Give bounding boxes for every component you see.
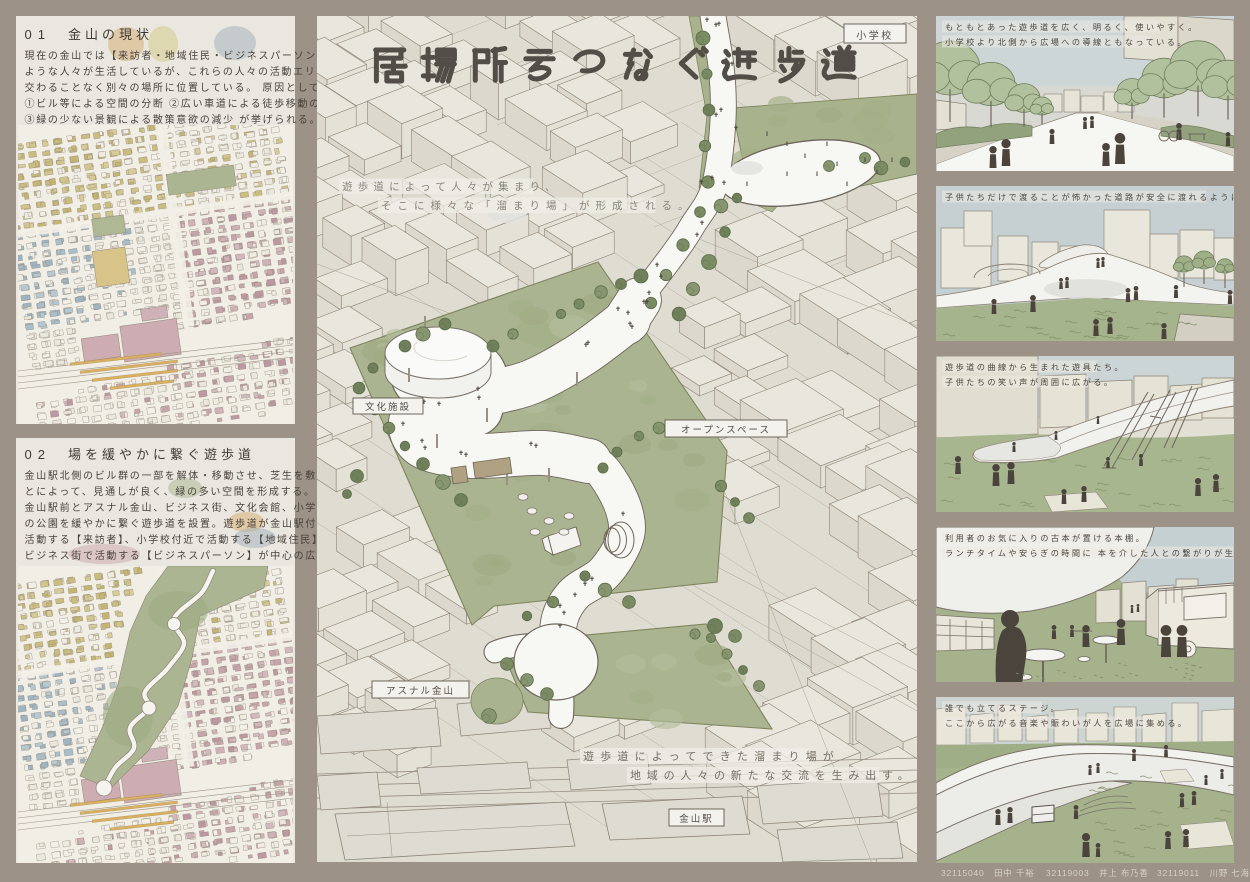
svg-text:子供たちだけで渡ることが怖かった道路が安全に渡れるように。: 子供たちだけで渡ることが怖かった道路が安全に渡れるように。: [945, 192, 1234, 202]
svg-text:利用者のお気に入りの古本が置ける本棚。: 利用者のお気に入りの古本が置ける本棚。: [945, 533, 1146, 543]
svg-text:文化施設: 文化施設: [364, 401, 410, 413]
svg-text:オープンスペース: オープンスペース: [680, 425, 770, 436]
svg-text:金山駅: 金山駅: [679, 813, 714, 825]
svg-text:小学校より北側から広場への導線ともなっている。: 小学校より北側から広場への導線ともなっている。: [945, 37, 1188, 47]
svg-text:小学校: 小学校: [856, 29, 894, 42]
svg-text:遊歩道によって人々が集まり、: 遊歩道によって人々が集まり、: [342, 180, 561, 193]
svg-text:子供たちの笑い声が周囲に広がる。: 子供たちの笑い声が周囲に広がる。: [945, 377, 1114, 387]
svg-text:ここから広がる音楽や賑わいが人を広場に集める。: ここから広がる音楽や賑わいが人を広場に集める。: [945, 718, 1189, 728]
svg-text:遊歩道の曲線から生まれた遊具たち。: 遊歩道の曲線から生まれた遊具たち。: [945, 362, 1125, 372]
svg-text:そこに様々な「溜まり場」が形成される。: そこに様々な「溜まり場」が形成される。: [381, 199, 695, 212]
svg-text:遊歩道によってできた溜まり場が: 遊歩道によってできた溜まり場が: [583, 749, 840, 763]
svg-text:地域の人々の新たな交流を生み出す。: 地域の人々の新たな交流を生み出す。: [630, 768, 915, 782]
svg-text:アスナル金山: アスナル金山: [385, 685, 454, 697]
svg-text:ランチタイムや安らぎの時間に 本を介した人との繋がりが生まれ: ランチタイムや安らぎの時間に 本を介した人との繋がりが生まれる。: [945, 548, 1234, 558]
svg-text:誰でも立てるステージ。: 誰でも立てるステージ。: [945, 703, 1061, 713]
svg-text:もともとあった遊歩道を広く、明るく、使いやすく。: もともとあった遊歩道を広く、明るく、使いやすく。: [945, 22, 1199, 32]
